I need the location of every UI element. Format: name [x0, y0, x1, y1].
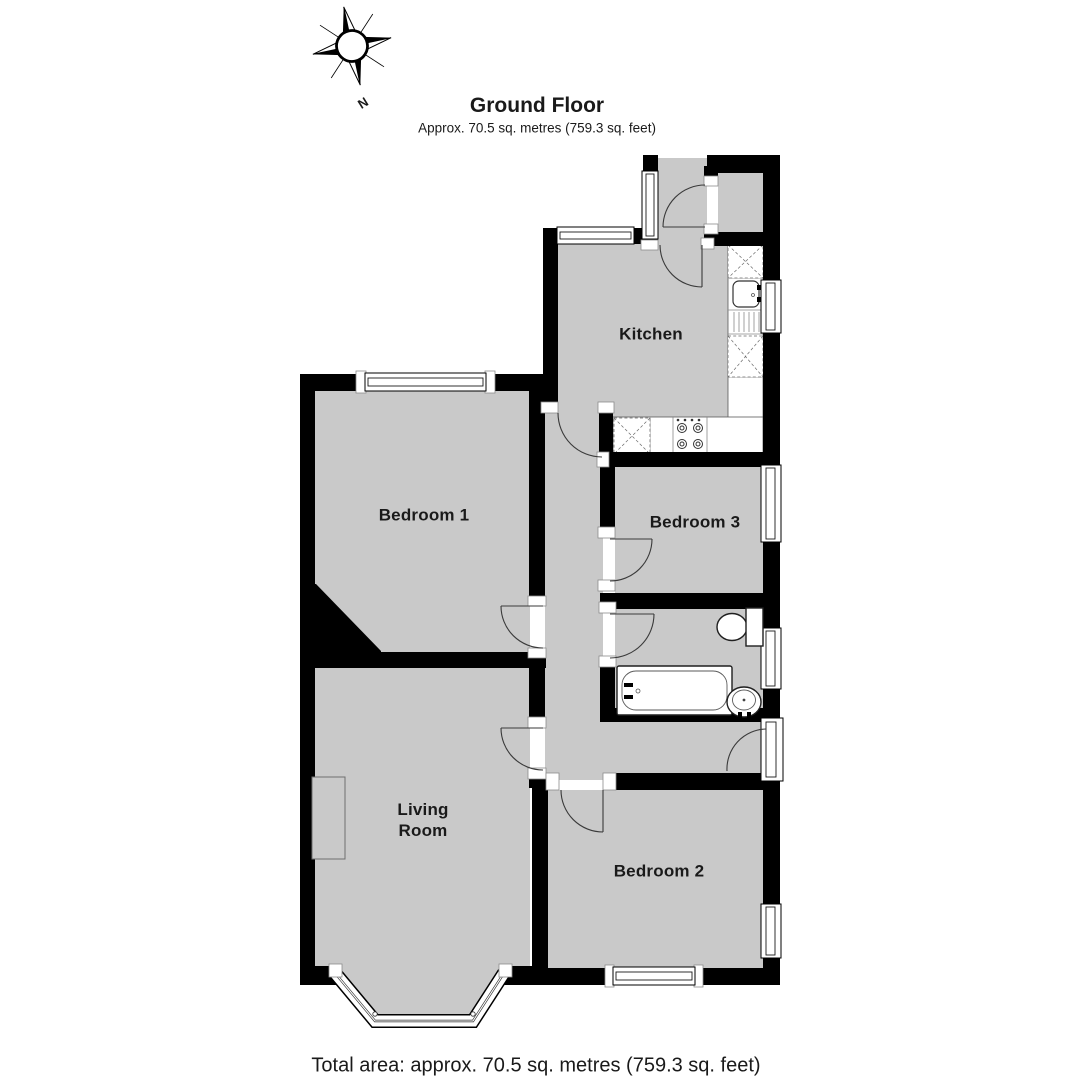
- lobby-floor: [718, 172, 763, 232]
- bedroom3-window: [761, 465, 781, 542]
- kitchen-window: [557, 227, 634, 244]
- kitchen-side-window: [761, 280, 781, 333]
- bathtub: [617, 666, 732, 715]
- floorplan-drawing: [0, 0, 1080, 1080]
- page-title: Ground Floor: [470, 94, 604, 118]
- base-unit: [728, 336, 763, 377]
- room-label-bedroom-1: Bedroom 1: [379, 505, 470, 526]
- total-area-text: Total area: approx. 70.5 sq. metres (759…: [311, 1055, 760, 1078]
- bedroom2-side-window: [761, 904, 781, 958]
- compass-rose-icon: [305, 0, 400, 93]
- bedroom2-window: [605, 965, 703, 987]
- base-unit: [728, 245, 763, 278]
- back-door-frame: [761, 718, 783, 781]
- bedroom1-window: [356, 371, 495, 393]
- base-unit: [614, 418, 650, 454]
- room-label-living-room: Living Room: [397, 799, 448, 841]
- entry-hall-floor: [658, 158, 707, 245]
- rear-hall-floor: [546, 722, 763, 778]
- room-label-bedroom-2: Bedroom 2: [614, 861, 705, 882]
- fireplace: [312, 777, 345, 859]
- floorplan-page: Ground Floor Approx. 70.5 sq. metres (75…: [0, 0, 1080, 1080]
- room-label-kitchen: Kitchen: [619, 324, 683, 345]
- page-subtitle: Approx. 70.5 sq. metres (759.3 sq. feet): [418, 121, 656, 136]
- room-label-bedroom-3: Bedroom 3: [650, 512, 741, 533]
- entry-window: [642, 171, 658, 239]
- bathroom-window: [761, 628, 781, 689]
